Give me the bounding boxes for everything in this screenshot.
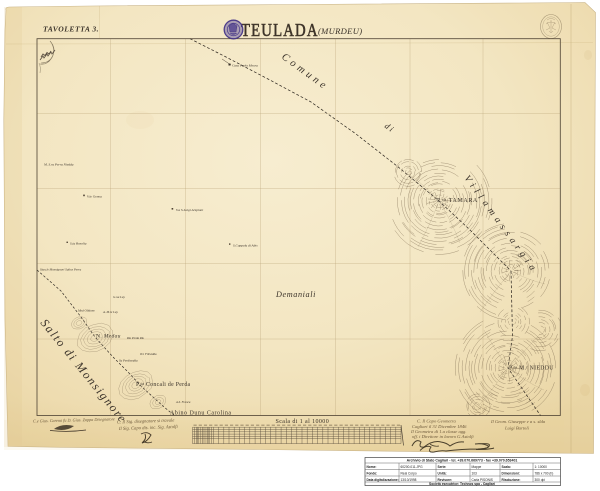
svg-text:Stan.le Monsignori Saltus Perr: Stan.le Monsignori Saltus Perra (40, 268, 82, 272)
svg-text:Serie:: Serie: (438, 465, 447, 469)
svg-text:Demaniali: Demaniali (275, 290, 316, 299)
svg-text:A.S. Franca: A.S. Franca (175, 400, 191, 404)
svg-text:Riu Perda Riu: Riu Perda Riu (126, 336, 145, 340)
svg-text:Ter. Filixedda: Ter. Filixedda (140, 352, 157, 356)
svg-text:C. Il Capo Geometra: C. Il Capo Geometra (417, 419, 456, 424)
svg-text:60200-011.JPG: 60200-011.JPG (401, 465, 424, 469)
svg-text:Scala di 1 al 10000: Scala di 1 al 10000 (276, 419, 330, 425)
svg-text:(MURDEU): (MURDEU) (318, 26, 362, 36)
svg-text:Abino Dunu Carolina: Abino Dunu Carolina (170, 411, 232, 417)
svg-text:786 x 700 (h): 786 x 700 (h) (535, 471, 554, 475)
svg-text:Casa Paolo Meura: Casa Paolo Meura (232, 64, 258, 68)
svg-text:Scala:: Scala: (502, 465, 511, 469)
svg-text:Unità:: Unità: (438, 471, 447, 475)
svg-text:N. Medau: N. Medau (96, 334, 121, 340)
svg-text:Fondo:: Fondo: (367, 471, 378, 475)
svg-text:S.ta Rosolia: S.ta Rosolia (70, 242, 87, 246)
svg-text:S.Coppola di Abis: S.Coppola di Abis (233, 244, 258, 248)
svg-text:TEULADA: TEULADA (241, 20, 319, 41)
svg-text:300 dpi: 300 dpi (535, 478, 546, 482)
svg-text:Med Olidone: Med Olidone (77, 309, 95, 313)
svg-text:Il Geom. Giuseppe e a s. slda: Il Geom. Giuseppe e a s. slda (490, 419, 546, 424)
svg-text:M. S.ra Perra Niedda: M. S.ra Perra Niedda (43, 163, 74, 167)
svg-text:Mappe: Mappe (472, 465, 482, 469)
svg-text:Data digitalizzazione:: Data digitalizzazione: (367, 478, 399, 482)
svg-text:Sa Perdixedda: Sa Perdixedda (119, 359, 138, 363)
svg-text:A. M.te Lay: A. M.te Lay (102, 310, 118, 314)
svg-text:Risoluzione:: Risoluzione: (502, 478, 521, 482)
svg-text:TAVOLETTA 3.: TAVOLETTA 3. (43, 25, 99, 34)
svg-text:Società esecutrice: Technos sp: Società esecutrice: Technos spa - Caglia… (429, 482, 495, 486)
svg-text:off. i Direttore in lavoro G.A: off. i Direttore in lavoro G.Astolfi (412, 434, 474, 439)
svg-text:Archivio di Stato Cagliari - t: Archivio di Stato Cagliari - tel. +39.07… (407, 459, 518, 463)
svg-text:Dimensioni:: Dimensioni: (502, 471, 520, 475)
svg-text:G.na Lay: G.na Lay (113, 295, 125, 299)
svg-text:Luigi Bartoli: Luigi Bartoli (504, 426, 530, 431)
svg-text:V.te Genna: V.te Genna (87, 195, 102, 199)
svg-text:Real Corpo: Real Corpo (401, 471, 417, 475)
svg-text:P.ta Concali de Perda: P.ta Concali de Perda (136, 381, 191, 388)
svg-text:13/10/1998: 13/10/1998 (401, 478, 417, 482)
svg-text:Nome:: Nome: (367, 465, 377, 469)
svg-text:1: 10000: 1: 10000 (535, 465, 548, 469)
svg-text:V.a S.Luigi Arzpiunt: V.a S.Luigi Arzpiunt (176, 208, 204, 212)
svg-text:103: 103 (472, 471, 478, 475)
